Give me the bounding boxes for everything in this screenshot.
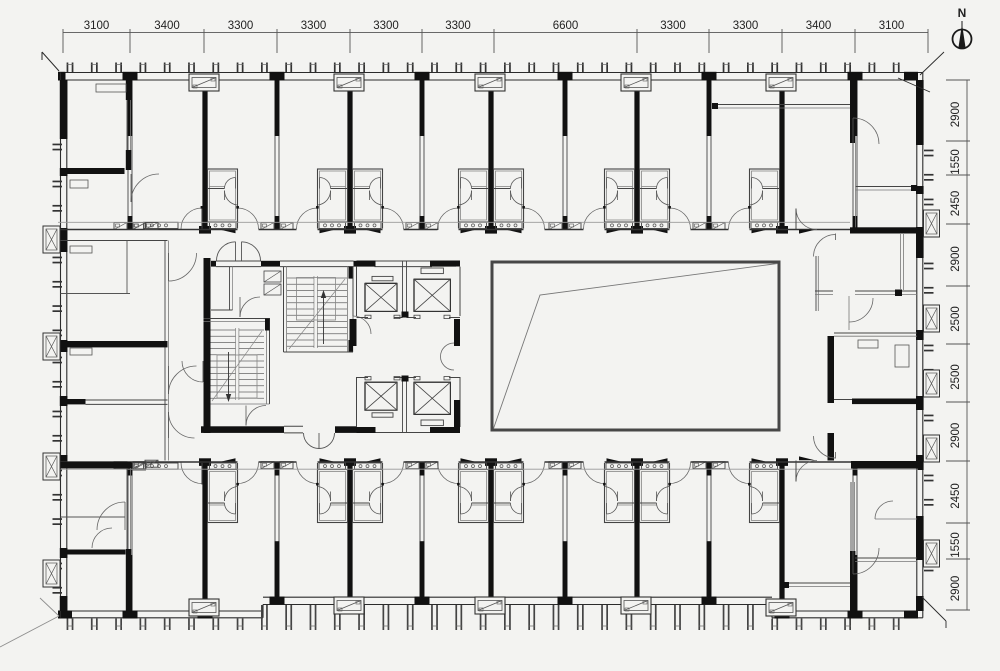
svg-text:N: N	[958, 6, 967, 20]
svg-text:3100: 3100	[84, 20, 110, 32]
svg-text:3400: 3400	[154, 20, 180, 32]
svg-text:2900: 2900	[950, 102, 962, 128]
svg-text:2900: 2900	[950, 423, 962, 449]
svg-text:1550: 1550	[950, 149, 962, 175]
svg-text:3300: 3300	[660, 20, 686, 32]
svg-text:2500: 2500	[950, 306, 962, 332]
svg-text:3100: 3100	[879, 20, 905, 32]
svg-text:2450: 2450	[950, 191, 962, 217]
svg-text:2500: 2500	[950, 364, 962, 390]
svg-text:3300: 3300	[228, 20, 254, 32]
svg-text:3400: 3400	[806, 20, 832, 32]
svg-text:2900: 2900	[950, 246, 962, 272]
svg-text:3300: 3300	[445, 20, 471, 32]
svg-text:3300: 3300	[733, 20, 759, 32]
svg-text:2900: 2900	[950, 576, 962, 602]
svg-text:1550: 1550	[950, 532, 962, 558]
svg-text:2450: 2450	[950, 483, 962, 509]
svg-text:3300: 3300	[373, 20, 399, 32]
svg-text:6600: 6600	[553, 20, 579, 32]
svg-text:3300: 3300	[301, 20, 327, 32]
